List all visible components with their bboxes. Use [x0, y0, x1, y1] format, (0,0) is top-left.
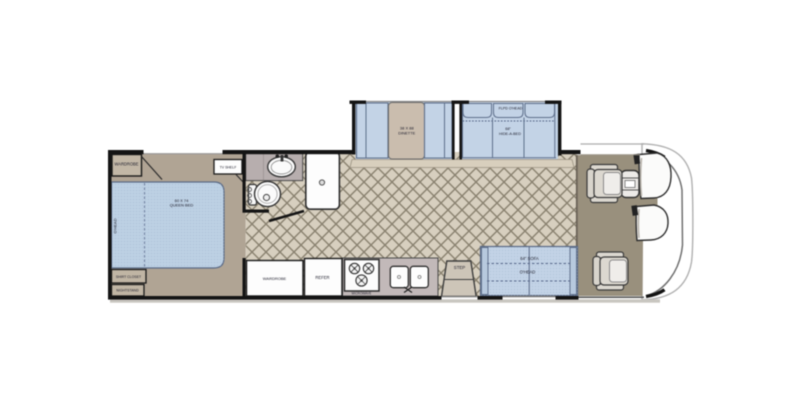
svg-text:TV SHELF: TV SHELF: [220, 166, 237, 170]
svg-text:DINETTE: DINETTE: [398, 130, 415, 135]
svg-text:SHIRT CLOSET: SHIRT CLOSET: [116, 275, 142, 279]
svg-text:WARDROBE: WARDROBE: [115, 161, 139, 166]
svg-text:68": 68": [505, 127, 511, 131]
svg-text:O'HEAD: O'HEAD: [520, 270, 536, 275]
svg-text:STEP: STEP: [454, 265, 466, 270]
svg-text:QUEEN BED: QUEEN BED: [170, 203, 194, 208]
svg-text:WARDROBE: WARDROBE: [263, 276, 287, 281]
svg-text:MICROWAVE: MICROWAVE: [352, 292, 372, 296]
svg-text:HIDE-A-BED: HIDE-A-BED: [499, 132, 521, 136]
svg-text:64" SOFA: 64" SOFA: [520, 256, 539, 261]
svg-text:REFER: REFER: [315, 275, 329, 280]
svg-text:NIGHTSTAND: NIGHTSTAND: [116, 289, 139, 293]
svg-text:FLPD O'HEAD: FLPD O'HEAD: [499, 106, 523, 110]
svg-text:O'HEAD: O'HEAD: [113, 218, 118, 233]
